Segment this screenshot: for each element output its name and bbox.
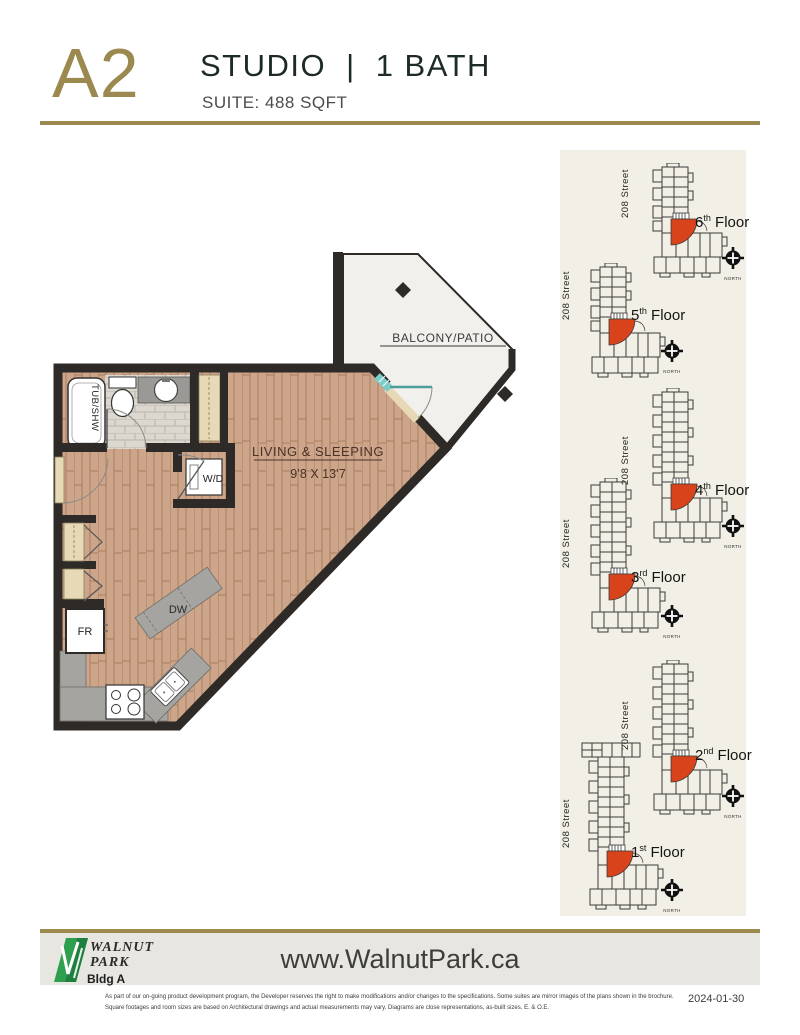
- compass: NORTH: [659, 877, 685, 913]
- dw-label: DW: [169, 604, 188, 616]
- balcony-wall-stub: [333, 252, 343, 370]
- floor-label-4: 4th Floor: [695, 481, 749, 499]
- website-url: www.WalnutPark.ca: [40, 944, 760, 975]
- compass: NORTH: [720, 783, 746, 819]
- stove: [106, 685, 144, 719]
- street-label: 208 Street: [561, 796, 572, 852]
- unit-type: STUDIO: [200, 48, 326, 83]
- plan-code: A2: [52, 38, 140, 108]
- disclaimer: As part of our on-going product developm…: [105, 992, 680, 1014]
- compass: NORTH: [720, 513, 746, 549]
- title-separator: |: [346, 48, 356, 83]
- keyplan-building-1: [574, 741, 666, 911]
- floor-label-3: 3rd Floor: [631, 568, 686, 586]
- floor-label-6: 6th Floor: [695, 213, 749, 231]
- compass: NORTH: [720, 245, 746, 281]
- floor-label-5: 5th Floor: [631, 306, 685, 324]
- suite-size: SUITE: 488 SQFT: [202, 93, 347, 113]
- wd-label: W/D: [203, 473, 224, 485]
- bath-count: 1 BATH: [376, 48, 491, 83]
- pantry-closet: [199, 368, 228, 448]
- living-label: LIVING & SLEEPING: [252, 444, 384, 459]
- north-label: NORTH: [659, 634, 685, 639]
- north-label: NORTH: [720, 544, 746, 549]
- room-dims: 9’8 X 13’7: [290, 467, 346, 481]
- compass: NORTH: [659, 338, 685, 374]
- toilet-tank: [109, 377, 136, 388]
- header-rule: [40, 121, 760, 125]
- disclaimer-line2: Square footages and room sizes are based…: [105, 1003, 680, 1014]
- street-label: 208 Street: [620, 166, 631, 222]
- fr-label: FR: [78, 626, 93, 638]
- north-label: NORTH: [720, 814, 746, 819]
- faucet: [162, 378, 170, 382]
- compass: NORTH: [659, 603, 685, 639]
- floor-label-1: 1st Floor: [631, 843, 685, 861]
- page-title: STUDIO|1 BATH: [200, 48, 491, 84]
- street-label: 208 Street: [561, 268, 572, 324]
- keyplan-panel: 208 Street 6th Floor NORTH 208 Street 5t…: [560, 150, 746, 916]
- tub-label: TUB/SHW: [89, 384, 100, 431]
- disclaimer-line1: As part of our on-going product developm…: [105, 992, 680, 1003]
- floor-plan-drawing: BALCONY/PATIO TUB/SHW: [50, 237, 540, 737]
- keyplan-building-3: [576, 478, 668, 634]
- north-label: NORTH: [720, 276, 746, 281]
- north-label: NORTH: [659, 908, 685, 913]
- street-label: 208 Street: [561, 516, 572, 572]
- document-date: 2024-01-30: [688, 993, 744, 1005]
- balcony-label: BALCONY/PATIO: [392, 331, 493, 345]
- floor-label-2: 2nd Floor: [695, 746, 752, 764]
- north-label: NORTH: [659, 369, 685, 374]
